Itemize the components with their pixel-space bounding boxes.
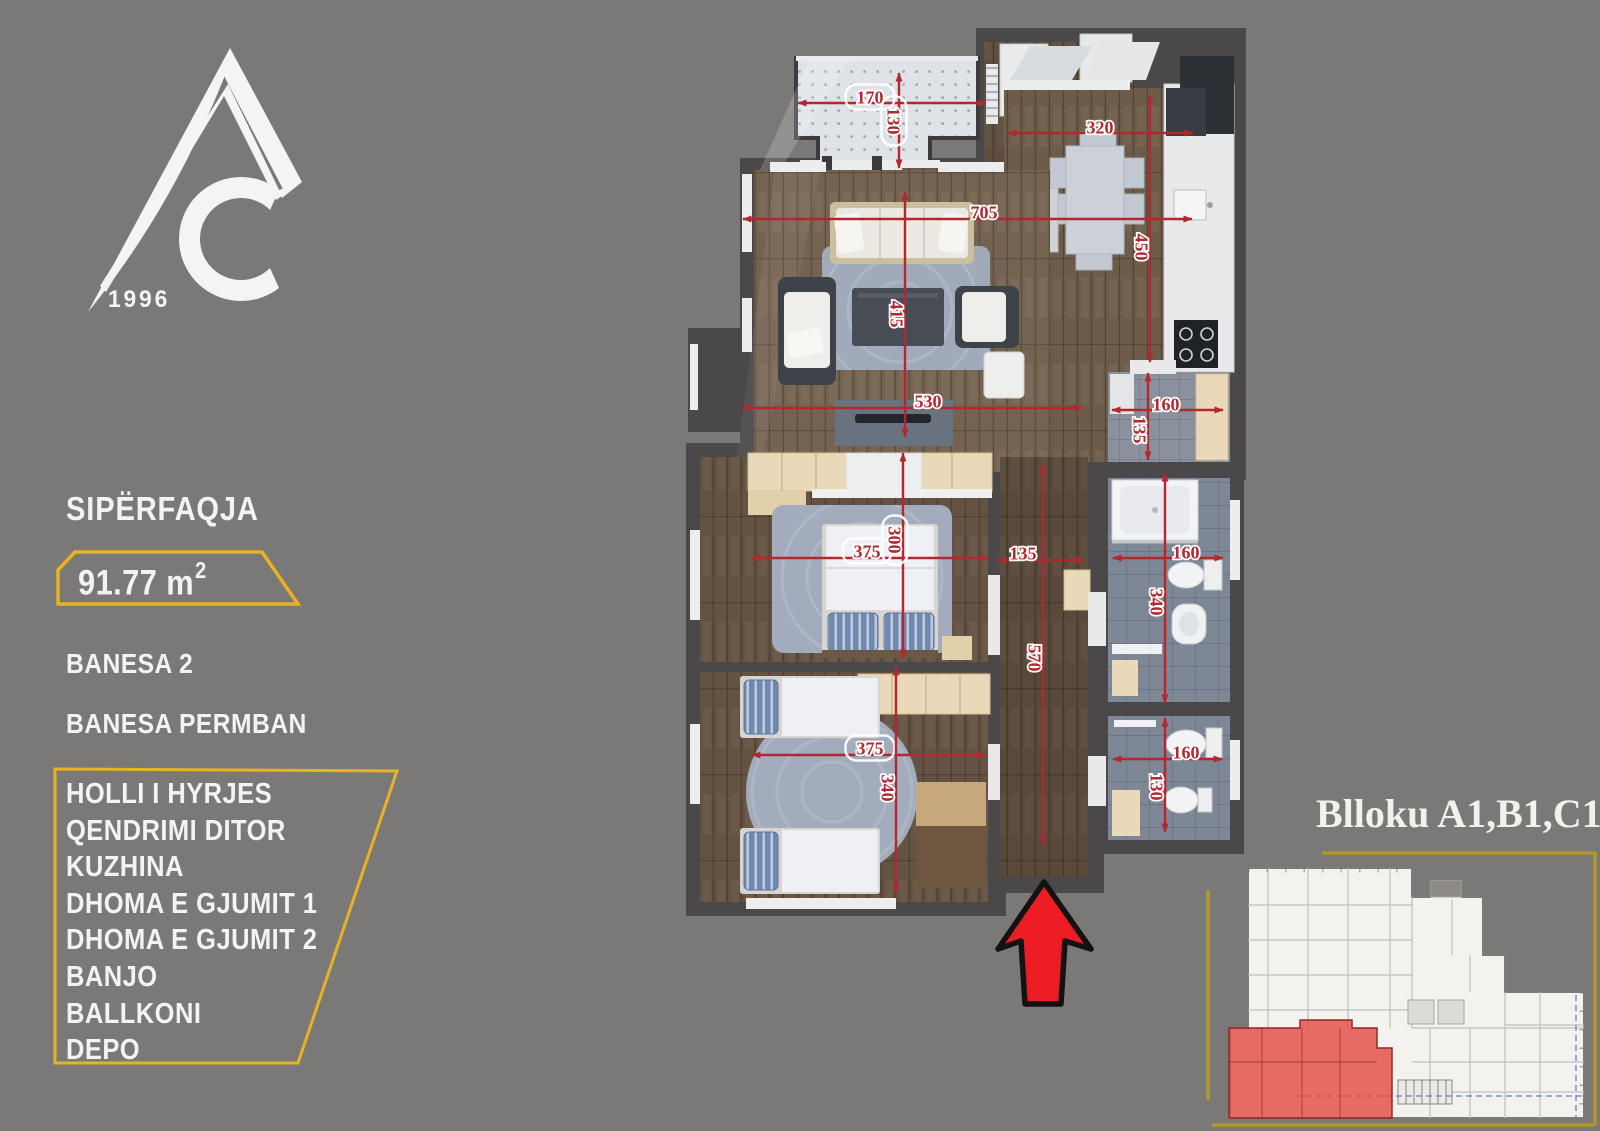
hall-cabinet bbox=[1064, 570, 1090, 610]
pouf bbox=[984, 352, 1024, 398]
sofa bbox=[830, 202, 974, 264]
single-bed bbox=[740, 676, 880, 738]
room-list-item: HOLLI I HYRJES bbox=[66, 776, 317, 813]
dimension-label: 375 bbox=[857, 739, 884, 759]
nightstand bbox=[942, 636, 972, 660]
dimension-label: 135 bbox=[1010, 544, 1037, 564]
surface-value-number: 91.77 m bbox=[78, 564, 194, 603]
bathroom-door bbox=[1088, 592, 1106, 646]
wc bbox=[1108, 716, 1240, 840]
bath-shelf bbox=[1112, 644, 1162, 654]
bedroom2-window bbox=[690, 724, 700, 804]
kitchen-sink bbox=[1174, 190, 1206, 220]
depo-shelf bbox=[1110, 374, 1134, 414]
wc-cabinet bbox=[1112, 790, 1140, 836]
poster: 1701303207054504155301601353753001355701… bbox=[0, 0, 1600, 1131]
desk bbox=[916, 782, 986, 888]
room-list-item: KUZHINA bbox=[66, 849, 317, 886]
highlighted-apartment bbox=[1229, 1020, 1392, 1118]
dimension-label: 340 bbox=[878, 775, 898, 802]
unit-name: BANESA 2 bbox=[66, 648, 193, 680]
logo-c-crescent bbox=[179, 177, 279, 301]
room-list-item: DHOMA E GJUMIT 1 bbox=[66, 886, 317, 923]
floor-plan: 1701303207054504155301601353753001355701… bbox=[686, 28, 1246, 1004]
armchair bbox=[778, 277, 836, 385]
dining-chair bbox=[1124, 158, 1144, 188]
logo-year: 1996 bbox=[108, 286, 170, 314]
living-window bbox=[742, 174, 752, 252]
room-list-item: BANJO bbox=[66, 959, 317, 996]
radiator bbox=[986, 64, 998, 124]
depo-door bbox=[1130, 360, 1176, 374]
depo bbox=[1108, 372, 1230, 462]
bedroom1-door bbox=[986, 575, 1000, 655]
company-logo bbox=[88, 48, 302, 312]
armchair bbox=[955, 286, 1019, 348]
dimension-label: 415 bbox=[887, 301, 907, 328]
dimension-label: 160 bbox=[1173, 743, 1200, 763]
block-plan bbox=[1208, 853, 1595, 1125]
dining-chair bbox=[1076, 252, 1112, 270]
bath-cabinet bbox=[1112, 660, 1138, 696]
room-list-item: DEPO bbox=[66, 1032, 317, 1069]
room-list: HOLLI I HYRJESQENDRIMI DITORKUZHINADHOMA… bbox=[66, 776, 317, 1069]
bedroom2-window bbox=[746, 898, 896, 909]
bedroom-2 bbox=[690, 672, 990, 909]
bidet bbox=[1164, 787, 1212, 813]
stairs bbox=[1398, 1080, 1452, 1104]
room-list-item: DHOMA E GJUMIT 2 bbox=[66, 922, 317, 959]
dimension-label: 160 bbox=[1173, 543, 1200, 563]
dimension-label: 570 bbox=[1025, 645, 1045, 672]
oven bbox=[1166, 88, 1206, 136]
surface-value: 91.77 m2 bbox=[78, 561, 206, 604]
cooktop bbox=[1174, 320, 1218, 368]
bedroom1-window bbox=[690, 530, 700, 620]
block-title: Blloku A1,B1,C1 bbox=[1316, 790, 1600, 837]
dimension-label: 135 bbox=[1130, 417, 1150, 444]
dimension-label: 320 bbox=[1087, 118, 1114, 138]
kitchen-window bbox=[1004, 80, 1130, 90]
dining-table bbox=[1066, 146, 1124, 254]
dimension-label: 170 bbox=[857, 88, 884, 108]
contains-heading: BANESA PERMBAN bbox=[66, 708, 307, 740]
bathroom bbox=[1108, 478, 1240, 702]
room-list-item: QENDRIMI DITOR bbox=[66, 813, 317, 850]
dimension-label: 340 bbox=[1147, 589, 1167, 616]
wc-door bbox=[1088, 756, 1106, 806]
dimension-label: 705 bbox=[971, 203, 998, 223]
entry-arrow bbox=[998, 882, 1091, 1004]
bidet bbox=[1172, 604, 1206, 644]
toilet bbox=[1168, 560, 1222, 590]
dimension-label: 130 bbox=[884, 108, 904, 135]
dimension-label: 450 bbox=[1132, 234, 1152, 261]
dimension-label: 300 bbox=[885, 527, 905, 554]
dimension-label: 530 bbox=[915, 392, 942, 412]
surface-heading: SIPËRFAQJA bbox=[66, 490, 259, 528]
surface-exponent: 2 bbox=[195, 557, 207, 583]
single-bed bbox=[740, 828, 880, 894]
bedroom2-door bbox=[986, 744, 1000, 800]
dimension-label: 375 bbox=[854, 542, 881, 562]
dimension-label: 130 bbox=[1147, 774, 1167, 801]
dimension-label: 160 bbox=[1153, 395, 1180, 415]
living-window bbox=[742, 298, 752, 352]
living-window bbox=[690, 344, 698, 410]
depo-cabinet bbox=[1196, 374, 1228, 460]
balcony bbox=[760, 56, 978, 174]
shower bbox=[1112, 480, 1198, 542]
room-list-item: BALLKONI bbox=[66, 996, 317, 1033]
